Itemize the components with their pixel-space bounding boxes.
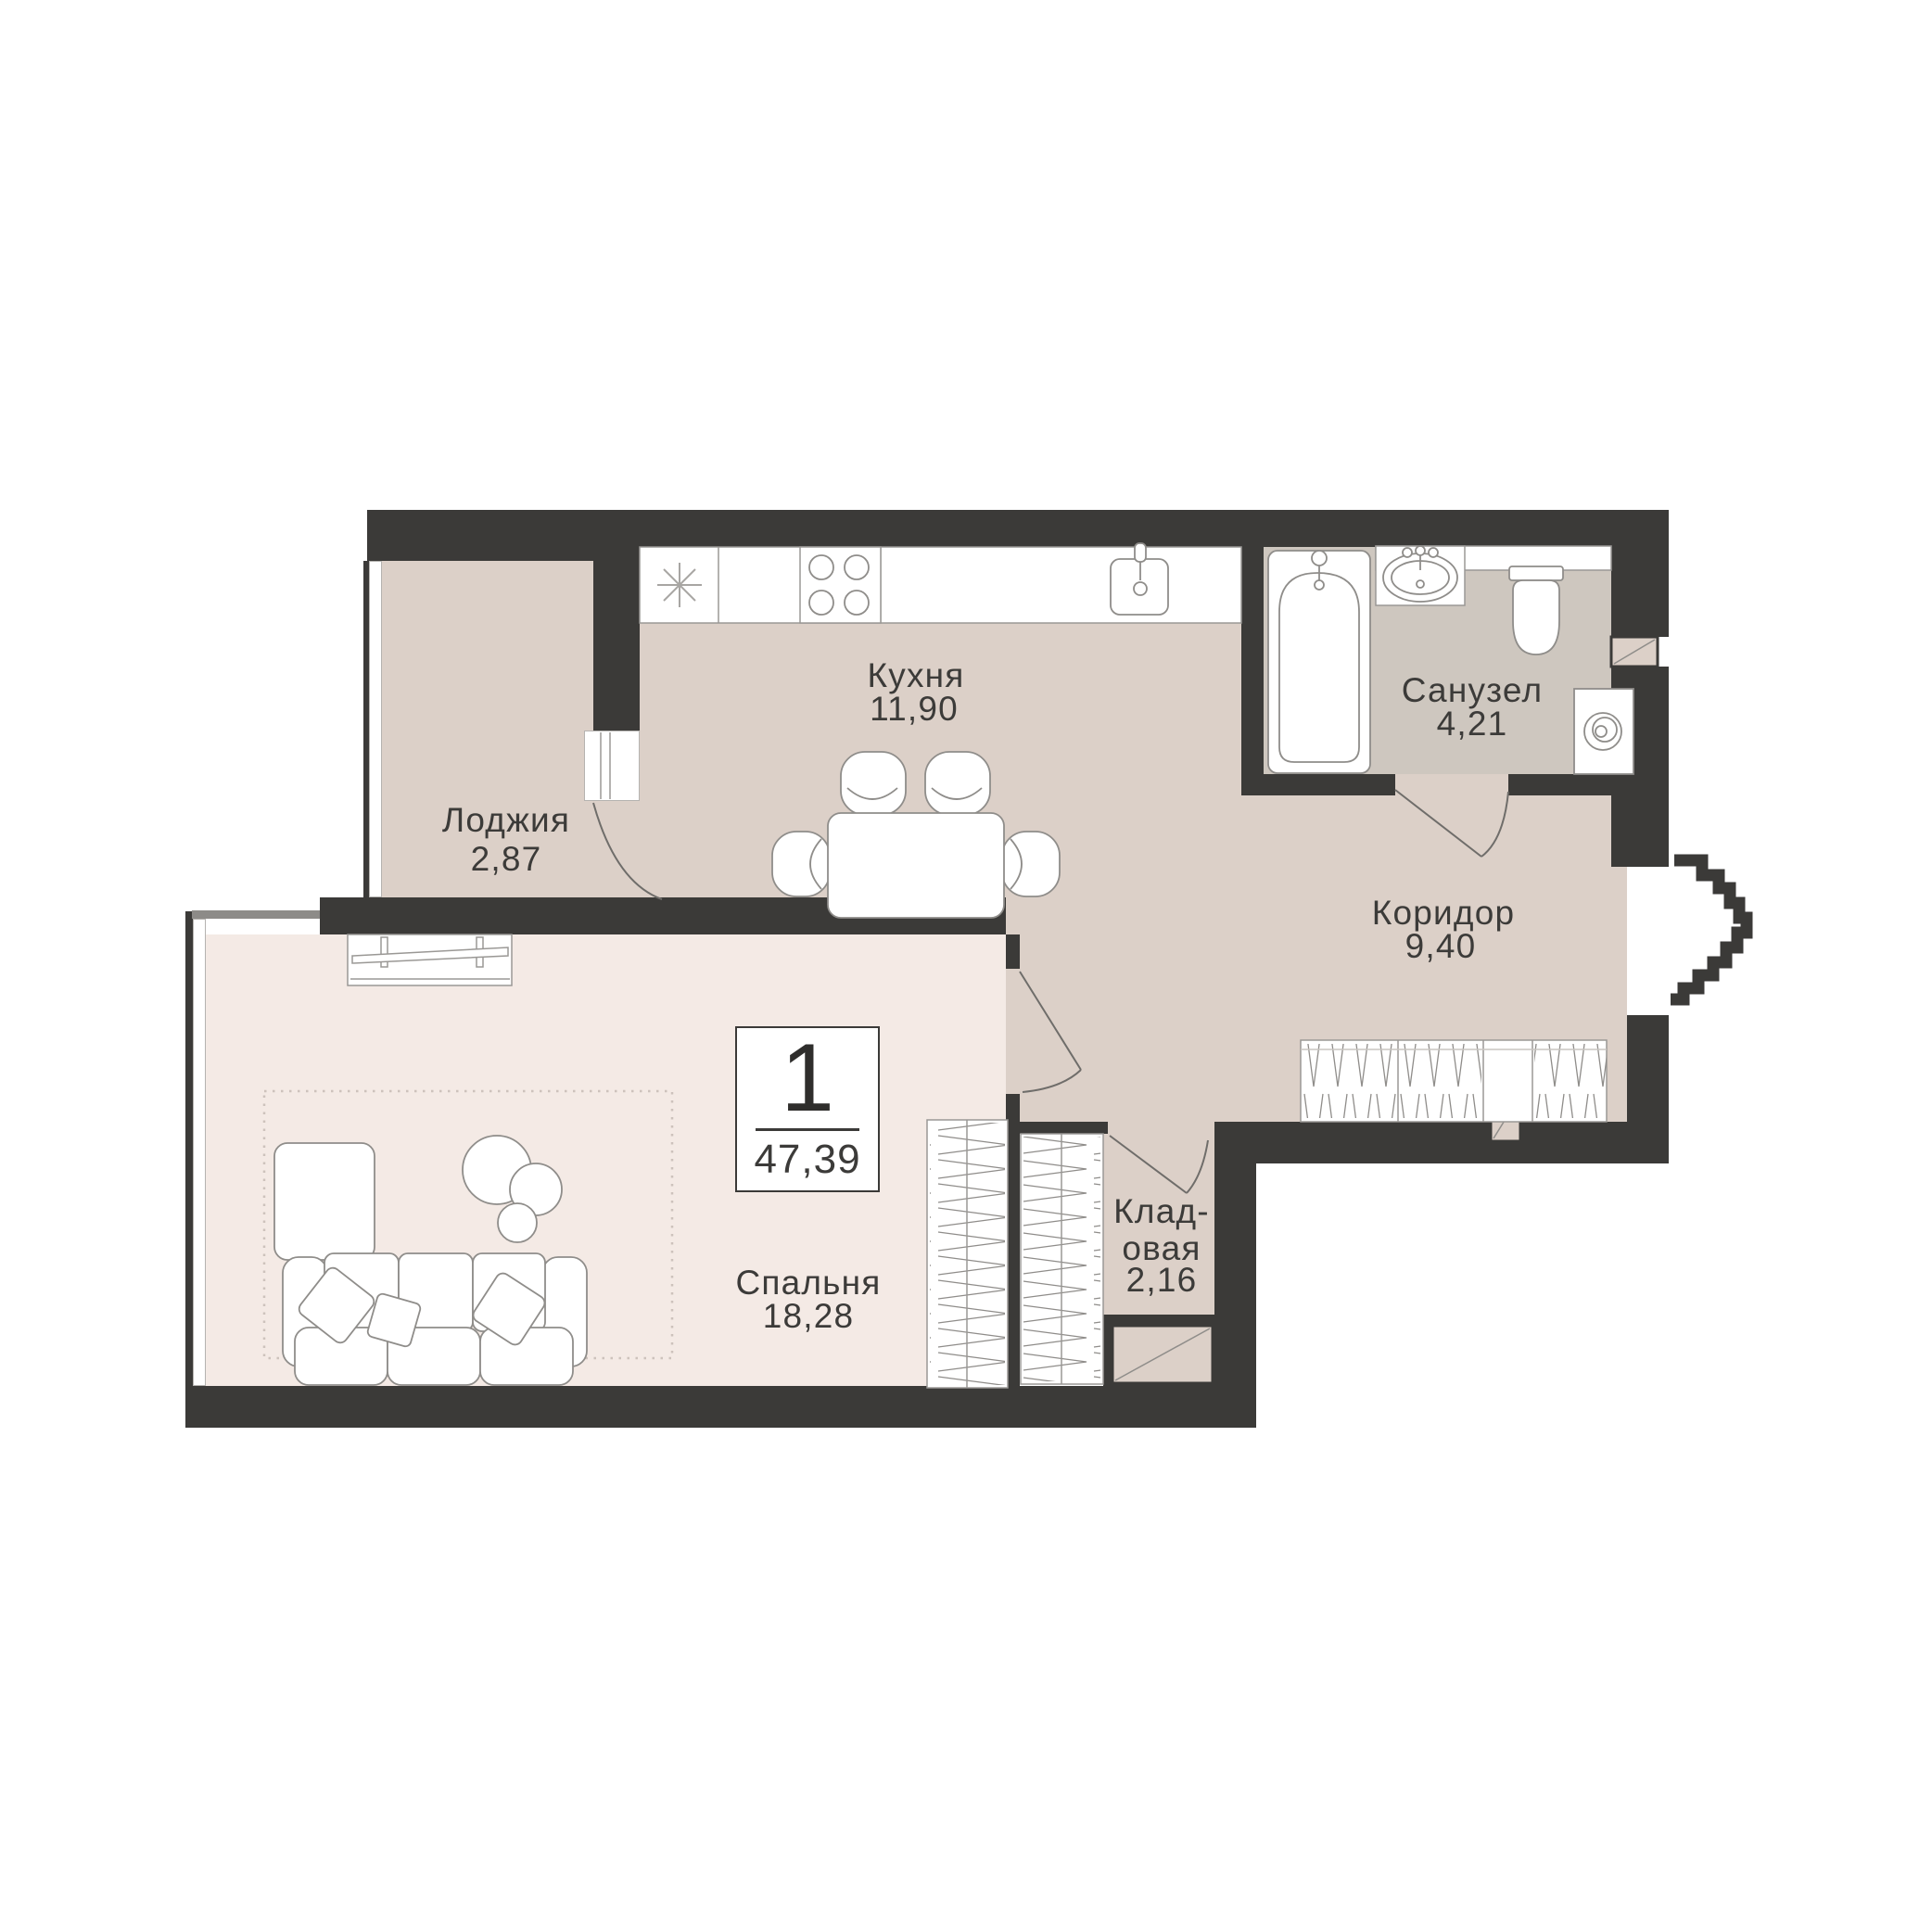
tv-console [348, 934, 512, 985]
dining-table [828, 813, 1004, 918]
room-area-bedroom: 18,28 [763, 1297, 855, 1336]
bathroom-door-swing [1395, 790, 1508, 857]
balcony-door-mullions [601, 732, 610, 799]
duct-bathroom [1611, 637, 1658, 667]
wardrobe-bedroom [927, 1120, 1008, 1388]
badge-divider [756, 1128, 859, 1131]
room-area-bathroom: 4,21 [1437, 705, 1508, 744]
room-label-loggia: Лоджия [442, 801, 570, 840]
room-area-loggia: 2,87 [471, 840, 542, 879]
floor-plan: Лоджия 2,87 Кухня 11,90 Санузел 4,21 Кор… [0, 0, 1932, 1932]
storage-door-swing [1110, 1136, 1208, 1193]
bedroom-door-swing [1020, 972, 1081, 1092]
coffee-tables [463, 1136, 562, 1242]
vent-asterisk-icon [657, 563, 702, 607]
apartment-badge: 1 47,39 [735, 1026, 880, 1192]
entrance-door-swing [1671, 860, 1747, 999]
balcony-door-swing [593, 803, 662, 899]
room-area-storage: 2,16 [1126, 1261, 1198, 1300]
bathtub [1268, 551, 1370, 773]
toilet [1509, 566, 1563, 655]
badge-rooms-count: 1 [781, 1030, 834, 1126]
badge-total-area: 47,39 [754, 1137, 860, 1183]
room-area-kitchen: 11,90 [870, 690, 959, 729]
wardrobe-corridor [1301, 1040, 1607, 1122]
pouf-table [274, 1143, 375, 1260]
washing-machine [1574, 689, 1633, 774]
sofa [283, 1253, 587, 1385]
duct-storage [1112, 1326, 1213, 1383]
plan-lineart [0, 0, 1932, 1932]
room-label-storage-1: Клад- [1113, 1192, 1210, 1231]
wardrobe-storage [1021, 1134, 1103, 1384]
room-area-corridor: 9,40 [1405, 927, 1477, 966]
